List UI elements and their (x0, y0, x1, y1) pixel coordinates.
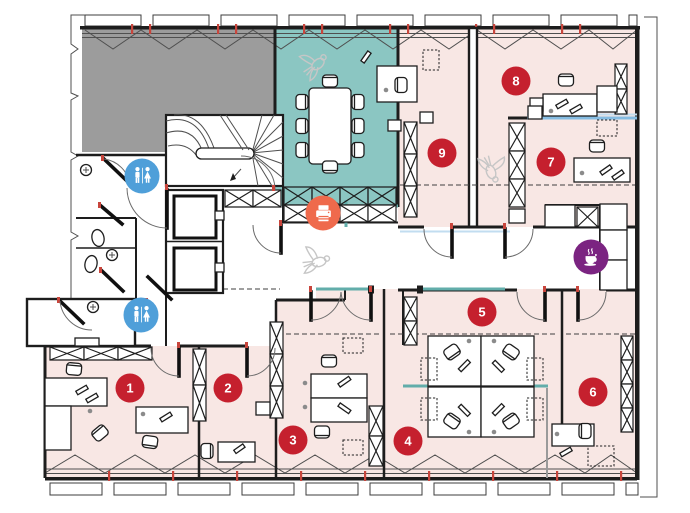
toilet-fixture (90, 228, 105, 247)
restroom-lower-marker (124, 298, 159, 333)
elevator-core (166, 190, 224, 293)
room-badge-3: 3 (279, 426, 308, 455)
conference-table (309, 88, 351, 164)
restroom-upper-marker (125, 159, 160, 194)
elevator-car (174, 248, 216, 290)
room-badge-8: 8 (502, 67, 531, 96)
restroom-icon (131, 165, 153, 187)
printer-station-marker (306, 196, 341, 231)
room-badge-2: 2 (214, 374, 243, 403)
room-badge-6: 6 (579, 378, 608, 407)
toilet-fixture (83, 254, 98, 273)
coffee-icon (580, 246, 602, 268)
toilet-area (81, 165, 118, 313)
floor-plan: 123456789 (0, 0, 690, 513)
room-badge-9: 9 (428, 139, 457, 168)
desk (311, 398, 367, 422)
coffee-point-marker (574, 240, 609, 275)
desk (428, 387, 481, 437)
restroom-icon (130, 304, 152, 326)
staircase (166, 115, 283, 186)
desk (481, 336, 534, 386)
desk (428, 336, 481, 386)
room-badge-5: 5 (468, 298, 497, 327)
printer-icon (312, 202, 334, 224)
elevator-car (174, 196, 216, 238)
room-badge-4: 4 (394, 427, 423, 456)
room-badge-1: 1 (116, 374, 145, 403)
desk (481, 387, 534, 437)
room-badge-7: 7 (537, 148, 566, 177)
